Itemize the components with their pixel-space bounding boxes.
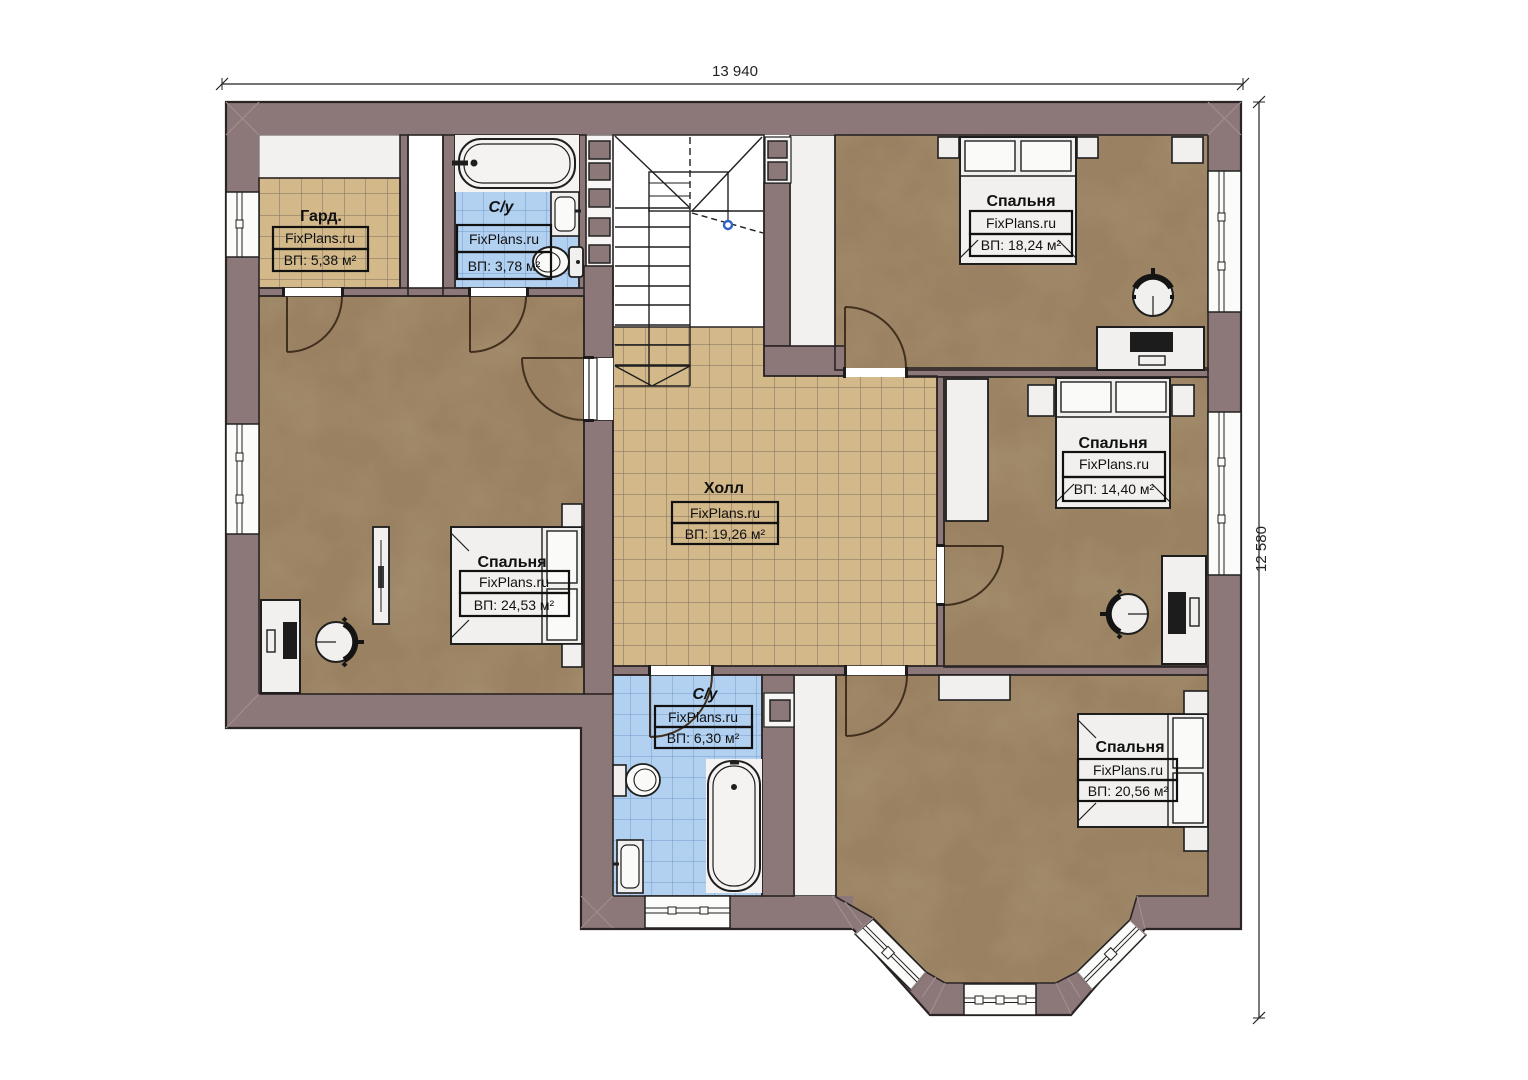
svg-text:Спальня: Спальня <box>477 554 546 571</box>
svg-text:Спальня: Спальня <box>986 193 1055 210</box>
svg-text:С/у: С/у <box>489 199 515 216</box>
svg-text:FixPlans.ru: FixPlans.ru <box>1079 456 1149 472</box>
svg-text:FixPlans.ru: FixPlans.ru <box>1093 762 1163 778</box>
svg-text:FixPlans.ru: FixPlans.ru <box>285 230 355 246</box>
svg-text:ВП: 20,56 м²: ВП: 20,56 м² <box>1088 783 1169 799</box>
svg-text:FixPlans.ru: FixPlans.ru <box>469 231 539 247</box>
svg-text:Гард.: Гард. <box>300 208 342 225</box>
svg-text:С/у: С/у <box>693 686 719 703</box>
svg-text:ВП: 18,24 м²: ВП: 18,24 м² <box>981 237 1062 253</box>
svg-text:ВП: 5,38 м²: ВП: 5,38 м² <box>284 252 357 268</box>
svg-text:ВП: 19,26 м²: ВП: 19,26 м² <box>685 526 766 542</box>
svg-text:ВП: 14,40 м²: ВП: 14,40 м² <box>1074 481 1155 497</box>
svg-text:ВП: 24,53 м²: ВП: 24,53 м² <box>474 597 555 613</box>
svg-text:12 580: 12 580 <box>1253 526 1270 572</box>
svg-text:Спальня: Спальня <box>1095 739 1164 756</box>
svg-text:Спальня: Спальня <box>1078 435 1147 452</box>
svg-text:FixPlans.ru: FixPlans.ru <box>479 574 549 590</box>
svg-text:ВП: 3,78 м²: ВП: 3,78 м² <box>468 258 541 274</box>
svg-text:FixPlans.ru: FixPlans.ru <box>690 505 760 521</box>
svg-text:FixPlans.ru: FixPlans.ru <box>668 709 738 725</box>
svg-text:ВП: 6,30 м²: ВП: 6,30 м² <box>667 730 740 746</box>
svg-text:FixPlans.ru: FixPlans.ru <box>986 215 1056 231</box>
svg-text:13 940: 13 940 <box>712 63 758 80</box>
svg-text:Холл: Холл <box>704 480 744 497</box>
